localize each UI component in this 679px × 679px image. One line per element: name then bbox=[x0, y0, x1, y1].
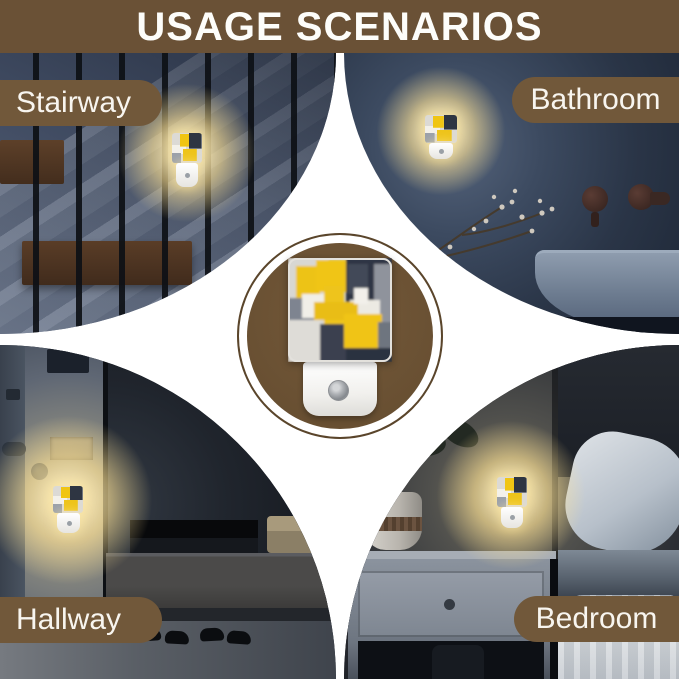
product-art-panel bbox=[288, 258, 392, 362]
night-light-plug bbox=[429, 143, 453, 159]
shoe bbox=[200, 627, 225, 641]
faucet-stem bbox=[591, 212, 599, 227]
counter-shadow bbox=[494, 317, 679, 334]
bench-cushion bbox=[267, 516, 319, 553]
blanket-folds bbox=[558, 550, 679, 598]
night-light-art-panel bbox=[425, 115, 457, 143]
label-bathroom-text: Bathroom bbox=[530, 83, 660, 117]
door-lock bbox=[6, 389, 20, 400]
wash-basin bbox=[535, 250, 679, 327]
page-title: USAGE SCENARIOS bbox=[136, 7, 542, 47]
product-badge bbox=[237, 233, 443, 439]
basket-silhouette bbox=[432, 645, 484, 679]
night-light-plug bbox=[176, 163, 198, 187]
faucet-knob-left bbox=[582, 186, 608, 212]
door-window bbox=[47, 349, 89, 373]
label-bedroom-text: Bedroom bbox=[536, 602, 658, 636]
label-stairway: Stairway bbox=[0, 80, 162, 126]
night-light-art-panel bbox=[172, 133, 202, 163]
faucet-spout bbox=[650, 192, 670, 205]
label-hallway: Hallway bbox=[0, 597, 162, 643]
night-light-plug bbox=[501, 507, 523, 528]
label-stairway-text: Stairway bbox=[16, 86, 131, 120]
label-bedroom: Bedroom bbox=[514, 596, 679, 642]
usage-scenarios-infographic: USAGE SCENARIOS bbox=[0, 0, 679, 679]
label-hallway-text: Hallway bbox=[16, 603, 121, 637]
drawer-knob bbox=[444, 599, 455, 610]
title-banner: USAGE SCENARIOS bbox=[0, 0, 679, 53]
night-light-plug bbox=[57, 513, 80, 533]
shoe bbox=[165, 630, 190, 644]
night-light-art-panel bbox=[53, 486, 83, 513]
plant-pot-band bbox=[364, 517, 422, 531]
night-light-art-panel bbox=[497, 477, 527, 507]
light-sensor-icon bbox=[328, 380, 349, 401]
label-bathroom: Bathroom bbox=[512, 77, 679, 123]
